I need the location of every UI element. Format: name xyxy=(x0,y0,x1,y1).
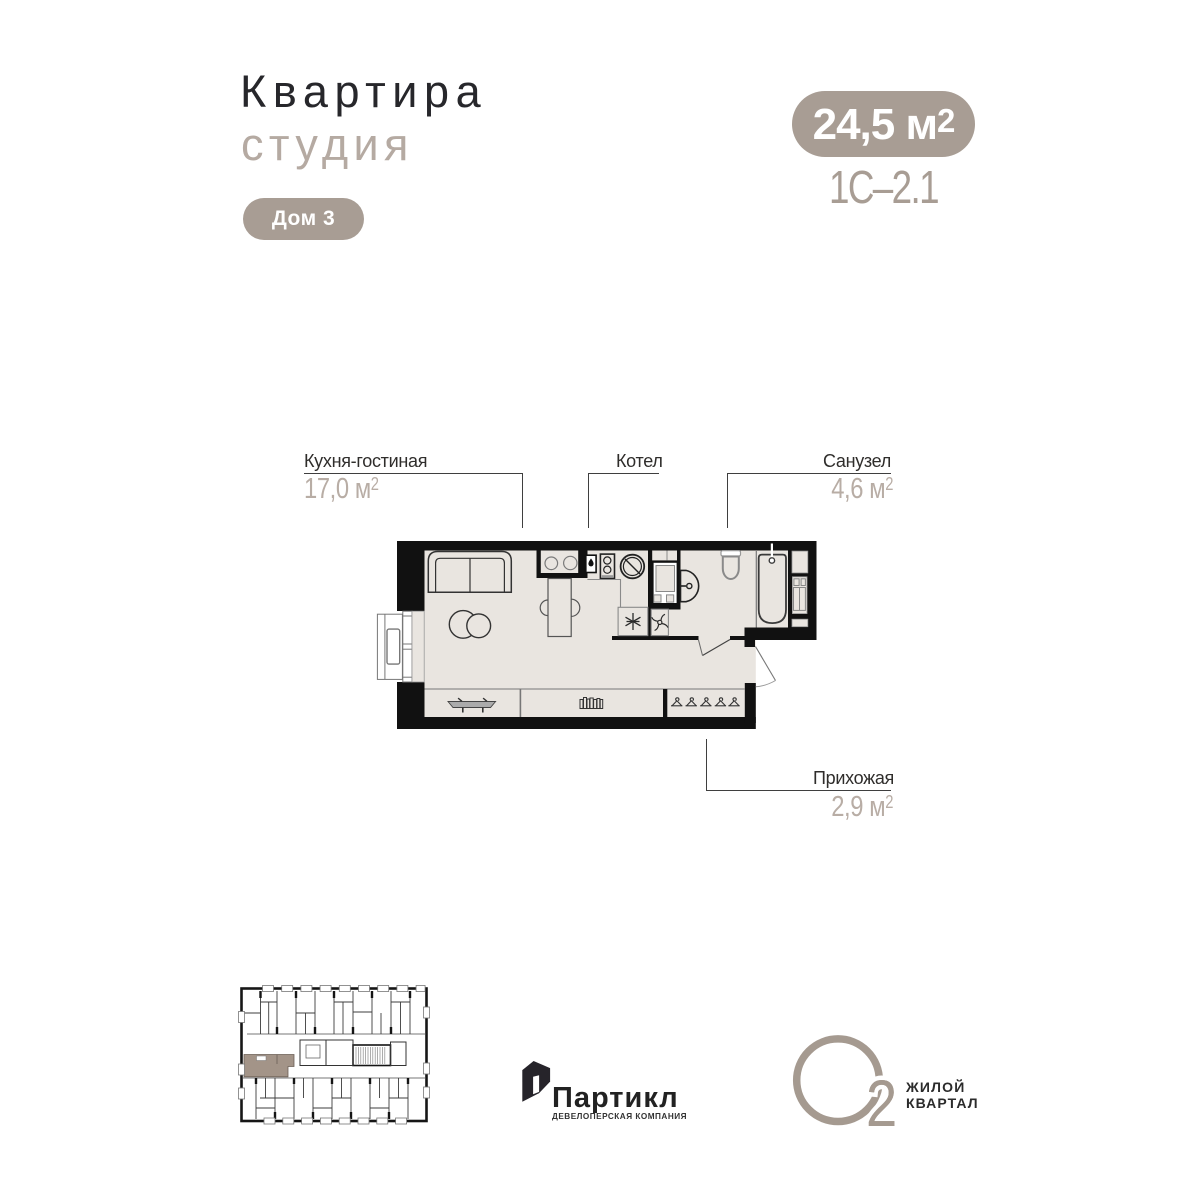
svg-text:2: 2 xyxy=(866,1067,897,1140)
